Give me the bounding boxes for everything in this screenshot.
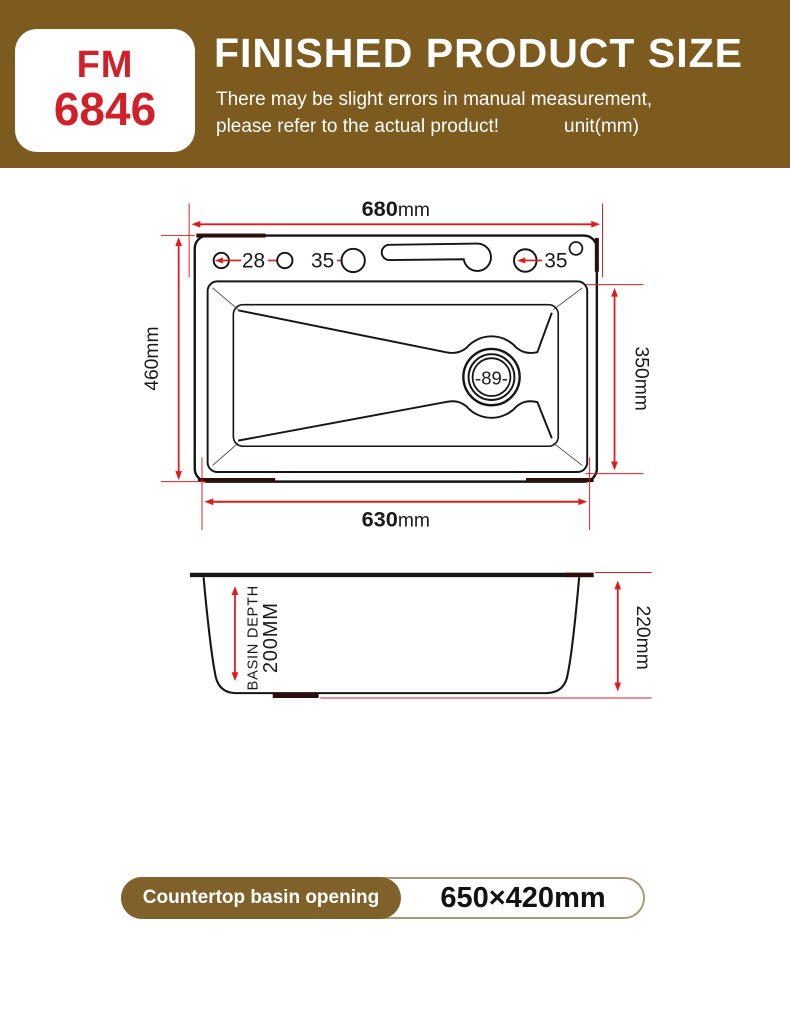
footer-badge: Countertop basin opening 650×420mm — [121, 877, 645, 919]
badge-label-pill: Countertop basin opening — [121, 877, 401, 919]
dim-460-label: 460mm — [142, 326, 163, 390]
dim-680-label: 680mm — [362, 196, 430, 221]
disclaimer-line1: There may be slight errors in manual mea… — [216, 89, 652, 111]
dim-220-label: 220mm — [632, 605, 653, 669]
page-title: FINISHED PRODUCT SIZE — [214, 30, 780, 77]
drain: -89- — [463, 349, 519, 405]
model-badge: FM 6846 — [15, 29, 195, 152]
dim-630-label: 630mm — [362, 507, 430, 532]
faucet-hole-2 — [277, 253, 292, 268]
basin-depth-value: 200MM — [260, 602, 282, 673]
disclaimer-line2: please refer to the actual product! — [216, 116, 499, 138]
header-banner: FM 6846 FINISHED PRODUCT SIZE There may … — [0, 0, 790, 168]
sink-side-view: BASIN DEPTH 200MM 220mm — [190, 573, 653, 698]
page: FM 6846 FINISHED PRODUCT SIZE There may … — [0, 0, 790, 1010]
drain-diameter-label: -89- — [475, 367, 508, 388]
small-hole — [570, 242, 583, 255]
unit-label: unit(mm) — [564, 116, 639, 138]
dim-350-label: 350mm — [630, 347, 651, 411]
model-code-number: 6846 — [54, 84, 156, 135]
hole-spacing-35a: 35 — [311, 250, 334, 273]
hole-spacing-28: 28 — [242, 250, 265, 273]
countertop-opening-value: 650×420mm — [403, 877, 643, 919]
dim-220-arrow — [614, 581, 621, 692]
model-code-top: FM — [77, 46, 134, 84]
hole-spacing-35b: 35 — [544, 250, 567, 273]
sink-dimension-diagram: 680mm 28 35 — [0, 168, 790, 858]
dim-basin-depth-arrow — [232, 586, 239, 681]
faucet-hole-3 — [342, 249, 365, 272]
sink-top-view: 680mm 28 35 — [142, 196, 652, 531]
